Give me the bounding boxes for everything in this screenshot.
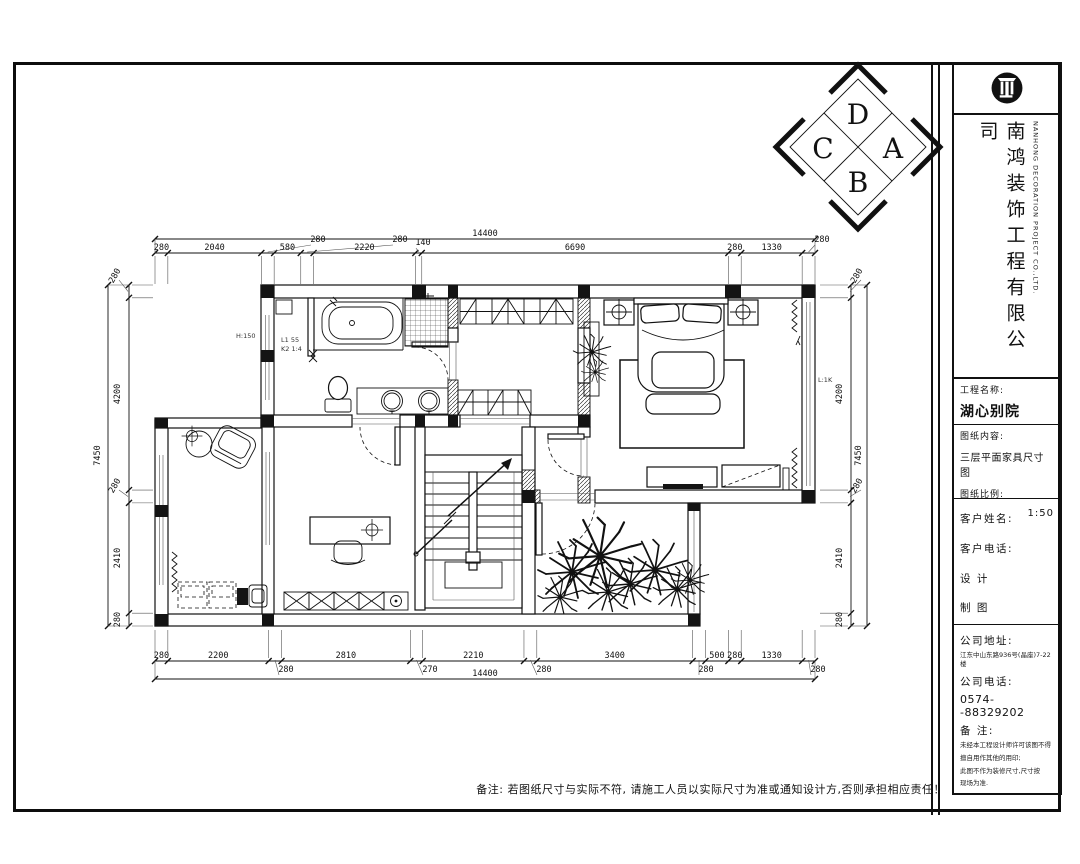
dim-label: 2410 bbox=[835, 548, 845, 568]
dim-label: 7450 bbox=[93, 445, 103, 465]
terrace-door-leaf bbox=[536, 503, 542, 555]
dim-label: 280 bbox=[107, 477, 123, 495]
dim-label: 280 bbox=[113, 612, 123, 627]
dim-label: 280 bbox=[849, 477, 865, 495]
dim-label: 280 bbox=[536, 665, 551, 675]
dim-label: 14400 bbox=[472, 229, 498, 239]
dim-label: 270 bbox=[422, 665, 437, 675]
dim-label: 280 bbox=[835, 612, 845, 627]
sink-right bbox=[419, 391, 440, 412]
duct-note-1: L1 55 bbox=[281, 336, 299, 344]
tv bbox=[663, 484, 703, 489]
study-room bbox=[284, 517, 408, 610]
dim-label: 4200 bbox=[113, 384, 123, 404]
lounge-room bbox=[172, 423, 267, 608]
dim-label: 280 bbox=[154, 243, 169, 253]
dim-label: 580 bbox=[280, 243, 295, 253]
armchair bbox=[207, 423, 258, 472]
dim-label: 2200 bbox=[208, 651, 228, 661]
staircase bbox=[414, 455, 522, 608]
dim-label: 2040 bbox=[204, 243, 224, 253]
curtain-icon bbox=[172, 552, 177, 592]
light-icon bbox=[182, 426, 203, 447]
curtain-icon bbox=[792, 448, 797, 488]
bathroom bbox=[276, 293, 448, 414]
round-table bbox=[186, 431, 212, 457]
dim-label: 7450 bbox=[854, 445, 864, 465]
bedroom-door-leaf bbox=[548, 434, 584, 439]
curtain-arrow-icon bbox=[796, 336, 800, 345]
bed-quilt bbox=[652, 352, 714, 388]
master-bedroom bbox=[573, 298, 800, 490]
compass-letter-b: B bbox=[848, 166, 869, 199]
bedroom-door-swing bbox=[548, 440, 584, 476]
pillow-left bbox=[640, 304, 679, 324]
bedroom-level-note: L:1K bbox=[818, 376, 833, 384]
dim-label: 6690 bbox=[565, 243, 585, 253]
bathtub-inner bbox=[329, 307, 393, 339]
bathroom-door-swing bbox=[415, 347, 448, 380]
dim-label: 500 bbox=[709, 651, 724, 661]
compass-letter-a: A bbox=[882, 132, 904, 165]
compass-letter-d: D bbox=[847, 98, 869, 131]
window-seat bbox=[783, 468, 789, 490]
dim-label: 4200 bbox=[835, 384, 845, 404]
duct-note-2: K2 1:4 bbox=[281, 345, 302, 353]
dim-label: 2810 bbox=[336, 651, 356, 661]
sheet-footnote: 备注: 若图纸尺寸与实际不符, 请施工人员以实际尺寸为准或通知设计方,否则承担相… bbox=[280, 781, 945, 797]
dim-label: 2220 bbox=[354, 243, 374, 253]
dim-label: 280 bbox=[278, 665, 293, 675]
newel-post bbox=[466, 552, 480, 563]
orientation-compass: D A B C bbox=[776, 65, 940, 229]
headboard bbox=[634, 298, 728, 304]
dim-label: 280 bbox=[698, 665, 713, 675]
appliance-block bbox=[237, 588, 248, 605]
dim-label: 280 bbox=[810, 665, 825, 675]
compass-letter-c: C bbox=[812, 132, 833, 165]
plant-icon bbox=[559, 518, 641, 588]
dim-label: 14400 bbox=[472, 669, 498, 679]
dim-label: 280 bbox=[727, 651, 742, 661]
dim-label: 280 bbox=[849, 267, 865, 285]
shower-floor bbox=[405, 299, 448, 346]
dim-label: 280 bbox=[727, 243, 742, 253]
bathtub-drain bbox=[350, 321, 355, 326]
floor-plan-canvas: D A B C bbox=[0, 0, 1080, 864]
duct-shaft bbox=[276, 300, 292, 314]
pillow-right bbox=[682, 304, 721, 324]
bathtub bbox=[322, 302, 402, 344]
dim-label: 280 bbox=[154, 651, 169, 661]
dim-label: 280 bbox=[310, 235, 325, 245]
dim-label: 1330 bbox=[761, 651, 781, 661]
dim-label: 280 bbox=[814, 235, 829, 245]
sink-left bbox=[382, 391, 403, 412]
terrace-plants bbox=[538, 518, 709, 614]
dim-label: 1330 bbox=[761, 243, 781, 253]
toilet-tank bbox=[325, 399, 351, 412]
walk-in-closet bbox=[458, 299, 573, 415]
dim-label: 140 bbox=[415, 238, 430, 248]
dim-label: 2210 bbox=[463, 651, 483, 661]
bath-level-note: H:150 bbox=[236, 332, 255, 340]
study-door-swing bbox=[360, 427, 398, 465]
drawing-sheet: 南鸿装饰工程有限公司 NANHONG DECORATION PROJECT CO… bbox=[0, 0, 1080, 864]
bed-bench bbox=[646, 394, 720, 414]
dim-label: 280 bbox=[392, 235, 407, 245]
dim-label: 3400 bbox=[604, 651, 624, 661]
sink-left-faucet-icon bbox=[389, 411, 395, 414]
toilet-bowl bbox=[329, 377, 348, 400]
dim-label: 2410 bbox=[113, 548, 123, 568]
sink-right-faucet-icon bbox=[426, 411, 432, 414]
study-door-leaf bbox=[395, 427, 400, 465]
curtain-icon bbox=[792, 300, 797, 332]
